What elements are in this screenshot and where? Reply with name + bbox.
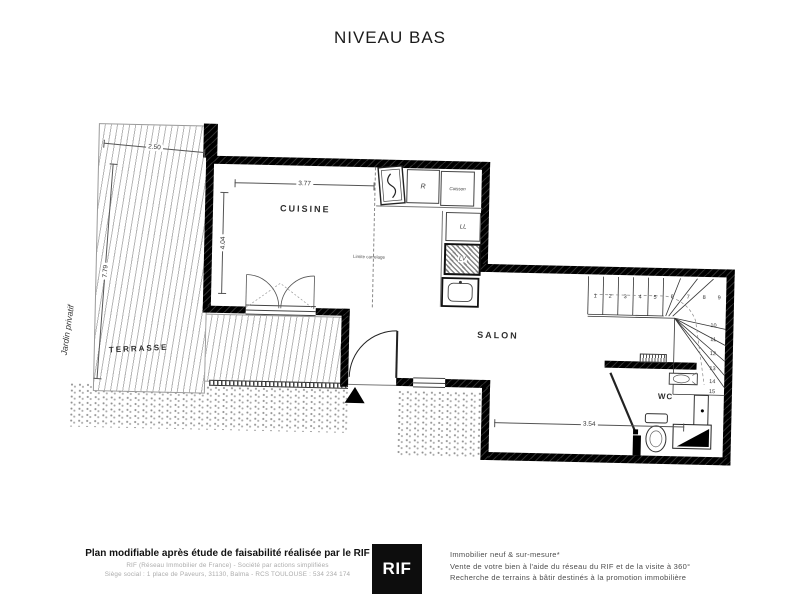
- washer-label: LL: [460, 224, 467, 230]
- dimension-cuisine-height: 4.04: [221, 192, 224, 294]
- stair-step-number: 13: [709, 366, 715, 372]
- dishwasher-box: LV: [444, 243, 482, 276]
- rif-logo: RIF: [372, 544, 422, 594]
- stair-step-number: 9: [718, 295, 721, 301]
- entry-arrow-icon: [342, 385, 368, 406]
- wall-segment: [206, 156, 490, 170]
- staircase: 1 2 3 4 5 6 7 8 9 10 11 12 13 14 15: [578, 270, 731, 401]
- wall-stub: [633, 435, 641, 455]
- footer-service-line: Immobilier neuf & sur-mesure*: [450, 549, 760, 561]
- cooking-box: Cuisson: [440, 171, 475, 207]
- footer-right-block: Immobilier neuf & sur-mesure* Vente de v…: [450, 549, 760, 584]
- stair-step-number: 4: [639, 294, 642, 300]
- wall-segment: [480, 452, 730, 466]
- grass-texture: [396, 390, 485, 458]
- room-label-salon: SALON: [477, 330, 519, 341]
- hand-basin-icon: [668, 370, 700, 387]
- stair-step-number: 7: [687, 295, 690, 301]
- dishwasher-label: LV: [458, 256, 467, 262]
- toilet-icon: [642, 413, 671, 458]
- cooking-label: Cuisson: [449, 186, 465, 191]
- stair-step-number: 12: [710, 351, 716, 357]
- garden-label: Jardin privatif: [59, 304, 76, 355]
- stair-step-number: 15: [709, 389, 715, 395]
- room-label-wc: WC: [658, 392, 674, 401]
- stair-step-number: 2: [609, 294, 612, 300]
- floor-plan: R Cuisson LL LV Limite carrelage: [0, 0, 800, 600]
- stair-step-number: 6: [671, 294, 674, 300]
- stair-step-number: 14: [709, 379, 715, 385]
- salon-window: [413, 377, 445, 388]
- stair-step-number: 3: [624, 294, 627, 300]
- footer-service-line: Recherche de terrains à bâtir destinés à…: [450, 572, 760, 584]
- wall-segment: [480, 162, 490, 272]
- tiling-limit-label: Limite carrelage: [353, 254, 385, 260]
- stair-step-number: 5: [654, 295, 657, 301]
- wall-segment: [203, 124, 218, 158]
- fridge-label: R: [420, 183, 425, 190]
- footer-company-line: RIF (Réseau Immobilier de France) - Soci…: [85, 562, 370, 569]
- stair-step-number: 8: [703, 295, 706, 301]
- floor-plan-page: NIVEAU BAS: [0, 0, 800, 600]
- terrace-deck-extension: [205, 314, 348, 385]
- kitchen-window-swing: [238, 266, 329, 313]
- room-label-cuisine: CUISINE: [280, 203, 331, 214]
- stair-step-number: 10: [710, 323, 716, 329]
- wall-segment: [480, 380, 490, 460]
- footer-left-block: Plan modifiable après étude de faisabili…: [85, 548, 370, 578]
- stair-step-number: 1: [594, 293, 597, 299]
- dimension-cuisine-width: 3.77: [235, 182, 375, 186]
- washer-box: LL: [445, 212, 481, 242]
- water-heater-icon: [377, 165, 406, 207]
- entry-door-swing: [342, 325, 403, 390]
- kitchen-sink: [441, 277, 480, 308]
- fridge-box: R: [406, 169, 440, 204]
- footer-main-line: Plan modifiable après étude de faisabili…: [85, 548, 370, 559]
- footer-address-line: Siège social : 1 place de Paveurs, 31130…: [85, 571, 370, 578]
- rif-logo-text: RIF: [383, 559, 412, 579]
- footer-service-line: Vente de votre bien à l'aide du réseau d…: [450, 561, 760, 573]
- stair-step-number: 11: [710, 337, 716, 343]
